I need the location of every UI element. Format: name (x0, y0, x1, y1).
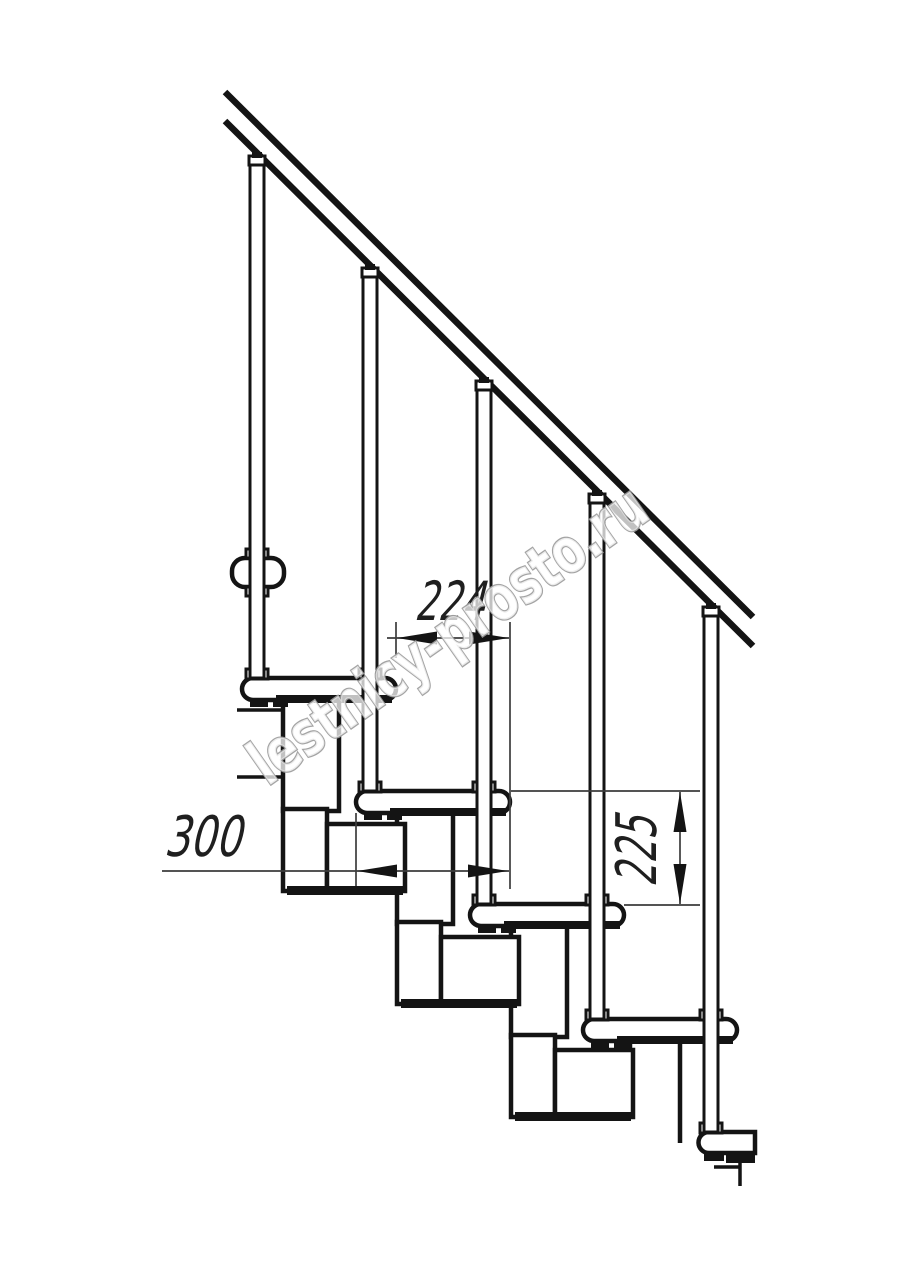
baluster-5-post (704, 615, 718, 1132)
dim-300-label: 300 (160, 804, 253, 869)
baluster-3-cap-nub (479, 377, 489, 383)
support-foot-1 (287, 886, 403, 895)
baluster-1 (246, 152, 268, 679)
support-foot-3 (515, 1112, 631, 1121)
dim-225-label: 225 (605, 804, 670, 891)
baluster-2-cap-nub (365, 264, 375, 270)
baluster-1-cap-nub (252, 152, 262, 158)
floor-step-profile (714, 1161, 740, 1186)
tread-4-tab-b (614, 1040, 629, 1048)
tread-3-tab-b (501, 925, 516, 933)
tread-1-tab-a (250, 699, 268, 707)
technical-drawing-page: 224 300 225 lestnicy-prosto.ru (0, 0, 914, 1280)
baluster-4-post (590, 502, 604, 1019)
support-lower-3 (511, 1035, 555, 1117)
baluster-1-post (250, 164, 264, 678)
tread-4-tab-a (591, 1040, 609, 1048)
support-block-1 (327, 824, 405, 891)
support-lower-2 (397, 922, 441, 1004)
bracket-body (699, 1132, 756, 1153)
baluster-5 (700, 603, 722, 1133)
dim-225-arrow-top (674, 792, 687, 832)
support-block-3 (555, 1050, 633, 1117)
baluster-5-cap-nub (706, 603, 716, 609)
tread-2-tab-b (387, 812, 402, 820)
dim-225-arrow-bottom (674, 864, 687, 904)
support-block-2 (441, 937, 519, 1004)
staircase-drawing: 224 300 225 lestnicy-prosto.ru (0, 0, 914, 1280)
bracket-tab (704, 1153, 724, 1161)
support-lower-1 (283, 809, 327, 891)
tread-2-tab-a (364, 812, 382, 820)
support-foot-2 (401, 999, 517, 1008)
tread-3-tab-a (478, 925, 496, 933)
bottom-support-bracket (699, 1132, 756, 1186)
